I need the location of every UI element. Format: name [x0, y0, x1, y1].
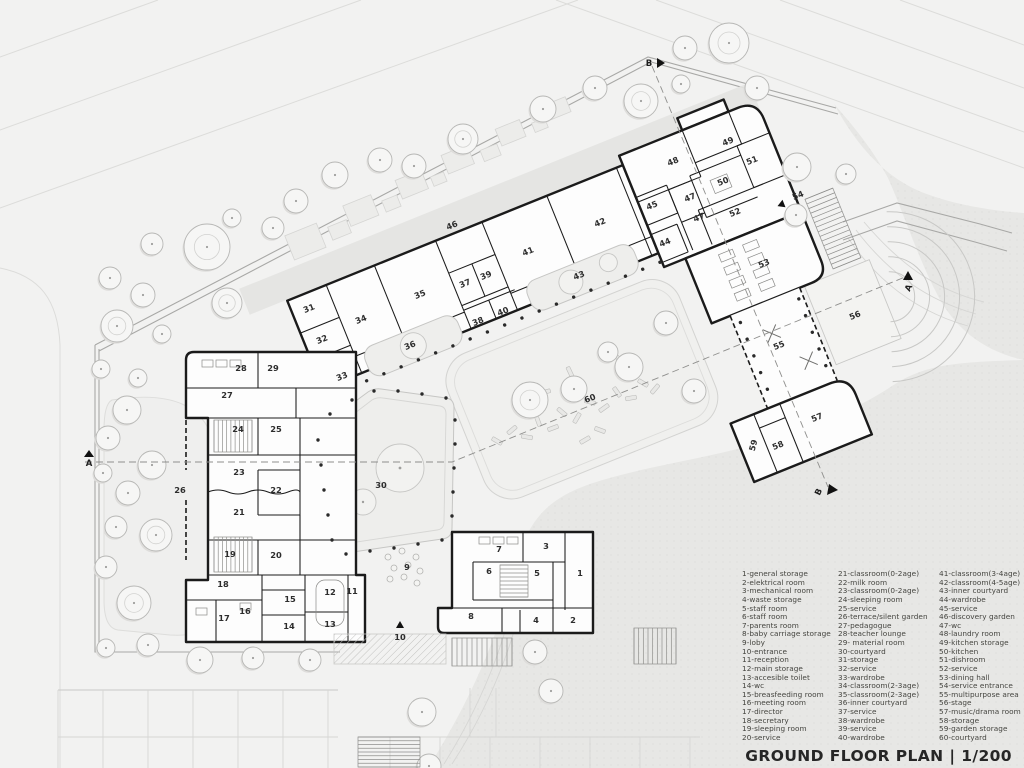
legend-item: 40-wardrobe — [838, 734, 939, 743]
tree-trunk-dot — [550, 690, 552, 692]
tree-trunk-dot — [334, 174, 336, 176]
tree-trunk-dot — [379, 159, 381, 161]
tree-trunk-dot — [127, 492, 129, 494]
tree-trunk-dot — [684, 47, 686, 49]
tree-trunk-dot — [607, 351, 609, 353]
column-dot — [372, 389, 375, 392]
tree-trunk-dot — [529, 399, 531, 401]
room-number: 3 — [543, 541, 549, 551]
room-number: 22 — [270, 485, 282, 495]
tree-trunk-dot — [665, 322, 667, 324]
room-number: 9 — [404, 562, 410, 572]
column-dot — [392, 546, 395, 549]
column-dot — [316, 438, 319, 441]
column-dot — [450, 514, 453, 517]
room-number: 27 — [221, 390, 233, 400]
tree-trunk-dot — [226, 302, 228, 304]
tree-trunk-dot — [252, 657, 254, 659]
tree-trunk-dot — [147, 644, 149, 646]
tree-trunk-dot — [102, 472, 104, 474]
tree-trunk-dot — [142, 294, 144, 296]
tree-trunk-dot — [594, 87, 596, 89]
tree-trunk-dot — [534, 651, 536, 653]
column-dot — [328, 412, 331, 415]
room-number: 26 — [174, 485, 186, 495]
room-number: 21 — [233, 507, 245, 517]
play-dot — [385, 554, 391, 560]
tree-trunk-dot — [640, 100, 642, 102]
tree-trunk-dot — [199, 659, 201, 661]
legend-item: 20-service — [742, 734, 838, 743]
room-number: 6 — [486, 566, 492, 576]
tree-trunk-dot — [796, 166, 798, 168]
room-number: 23 — [233, 467, 245, 477]
tree-trunk-dot — [231, 217, 233, 219]
room-number: 29 — [267, 363, 279, 373]
play-dot — [401, 574, 407, 580]
tree-trunk-dot — [107, 437, 109, 439]
room-number: 5 — [534, 568, 540, 578]
play-dot — [413, 554, 419, 560]
tree-trunk-dot — [151, 243, 153, 245]
column-dot — [326, 513, 329, 516]
tree-trunk-dot — [109, 277, 111, 279]
room-number: 13 — [324, 619, 336, 629]
column-dot — [453, 442, 456, 445]
tree-trunk-dot — [272, 227, 274, 229]
tree-trunk-dot — [756, 87, 758, 89]
legend-item: 60-courtyard — [939, 734, 1024, 743]
column-dot — [330, 538, 333, 541]
room-number: 16 — [239, 606, 251, 616]
room-number: 15 — [284, 594, 296, 604]
tree-trunk-dot — [628, 366, 630, 368]
tree-trunk-dot — [295, 200, 297, 202]
column-dot — [344, 552, 347, 555]
column-dot — [319, 463, 322, 466]
column-dot — [416, 542, 419, 545]
room-number: 25 — [270, 424, 282, 434]
play-dot — [414, 580, 420, 586]
column-dot — [452, 466, 455, 469]
column-dot — [368, 549, 371, 552]
tree-trunk-dot — [161, 333, 163, 335]
column-dot — [396, 389, 399, 392]
tree-trunk-dot — [428, 765, 430, 767]
room-number: 11 — [346, 586, 358, 596]
tree-trunk-dot — [795, 214, 797, 216]
tree-trunk-dot — [206, 246, 208, 248]
room-number: 4 — [533, 615, 539, 625]
column-dot — [350, 398, 353, 401]
room-number: 17 — [218, 613, 230, 623]
column-dot — [444, 396, 447, 399]
tree-trunk-dot — [100, 368, 102, 370]
room-number: 24 — [232, 424, 244, 434]
room-number: 18 — [217, 579, 229, 589]
room-number: 8 — [468, 611, 474, 621]
tree-trunk-dot — [105, 566, 107, 568]
tree-trunk-dot — [462, 138, 464, 140]
column-dot — [322, 488, 325, 491]
play-dot — [399, 548, 405, 554]
tree-trunk-dot — [542, 108, 544, 110]
room-number: 1 — [577, 568, 583, 578]
tree-trunk-dot — [309, 659, 311, 661]
play-dot — [387, 576, 393, 582]
tree-trunk-dot — [105, 647, 107, 649]
column-dot — [453, 418, 456, 421]
room-number: 14 — [283, 621, 295, 631]
legend-column-2: 21-classroom(0-2age)22-milk room23-class… — [838, 570, 939, 743]
tree-trunk-dot — [413, 165, 415, 167]
room-number: 2 — [570, 615, 576, 625]
legend-column-3: 41-classroom(3-4age)42-classroom(4-5age)… — [939, 570, 1024, 743]
room-number: 28 — [235, 363, 247, 373]
room-number: 20 — [270, 550, 282, 560]
tree-trunk-dot — [728, 42, 730, 44]
tree-trunk-dot — [845, 173, 847, 175]
tree-trunk-dot — [693, 390, 695, 392]
tree-trunk-dot — [126, 409, 128, 411]
column-dot — [420, 392, 423, 395]
tree-trunk-dot — [680, 83, 682, 85]
legend: 1-general storage2-elektrical room3-mech… — [742, 570, 1024, 743]
tree-trunk-dot — [115, 526, 117, 528]
floor-plan-sheet: 1234567891011121314151617181920212223242… — [0, 0, 1024, 768]
page-title: GROUND FLOOR PLAN | 1/200 — [745, 747, 1012, 765]
tree-trunk-dot — [116, 325, 118, 327]
column-dot — [451, 490, 454, 493]
play-dot — [417, 568, 423, 574]
tree-trunk-dot — [137, 377, 139, 379]
west-wing — [186, 352, 365, 642]
play-dot — [391, 565, 397, 571]
room-number: 30 — [375, 480, 387, 490]
tree-trunk-dot — [573, 388, 575, 390]
legend-column-1: 1-general storage2-elektrical room3-mech… — [742, 570, 838, 743]
entrance-plaza-hatch — [334, 634, 446, 664]
section-label: A — [86, 459, 93, 469]
tree-trunk-dot — [133, 602, 135, 604]
section-label: B — [646, 59, 652, 69]
room-number: 12 — [324, 587, 336, 597]
tree-trunk-dot — [155, 534, 157, 536]
tree-trunk-dot — [151, 464, 153, 466]
room-number: 19 — [224, 549, 236, 559]
room-number: 10 — [394, 632, 406, 642]
room-number: 7 — [496, 544, 502, 554]
tree-trunk-dot — [421, 711, 423, 713]
column-dot — [440, 538, 443, 541]
